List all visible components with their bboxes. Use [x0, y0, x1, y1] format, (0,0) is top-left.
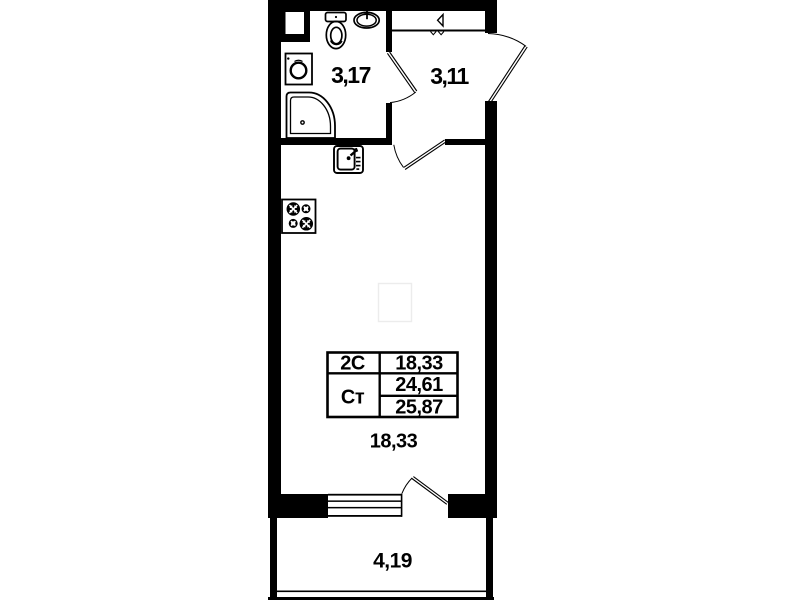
svg-text:25,87: 25,87 [395, 397, 443, 419]
svg-text:18,33: 18,33 [395, 352, 443, 374]
svg-text:4,19: 4,19 [373, 550, 412, 573]
svg-text:Ст: Ст [341, 387, 365, 409]
svg-text:2С: 2С [340, 353, 365, 375]
svg-text:3,11: 3,11 [430, 63, 469, 89]
svg-text:3,17: 3,17 [331, 62, 370, 88]
svg-text:18,33: 18,33 [370, 431, 418, 453]
svg-text:24,61: 24,61 [395, 374, 443, 396]
